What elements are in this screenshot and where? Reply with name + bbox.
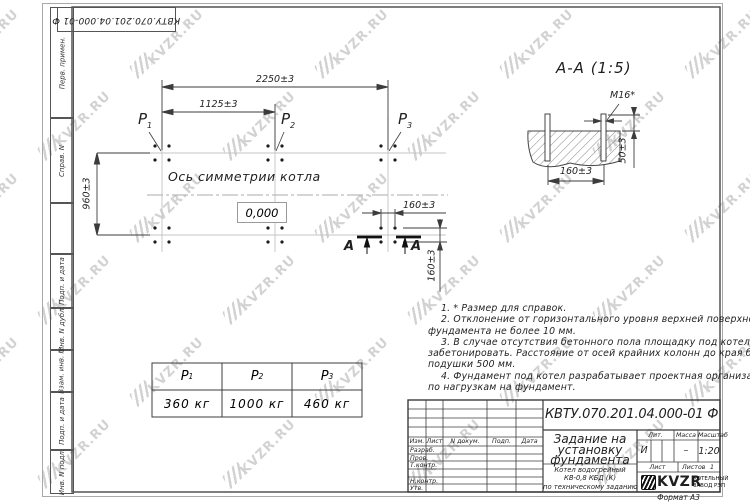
margin-cell-inv-dubl: Инв. N дубл.: [50, 307, 74, 351]
tb-col-podp: Подп.: [487, 438, 516, 445]
kvzr-logo-caption-line1: КОТЕЛЬНЫЙ: [693, 476, 728, 482]
tb-row-tkontr: Т.контр.: [410, 462, 437, 469]
tb-row-razrab: Разраб.: [410, 447, 435, 454]
note-line: по нагрузкам на фундамент.: [428, 382, 720, 393]
dim-160-vertical: 160±3: [427, 249, 438, 281]
dim-1125: 1125±3: [162, 99, 275, 110]
technical-notes: 1. * Размер для справок. 2. Отклонение о…: [428, 303, 720, 393]
tb-sheets-value: 1: [710, 464, 714, 471]
load-table-header-p2: P2: [222, 363, 292, 390]
tb-lit-value: И: [637, 445, 651, 456]
document-code: КВТУ.070.201.04.000-01 Ф: [545, 407, 718, 422]
note-line: забетонировать. Расстояние от осей крайн…: [428, 348, 720, 359]
doc-subtitle-line: Котел водогрейный: [543, 466, 637, 474]
note-line: 3. В случае отсутствия бетонного пола пл…: [428, 337, 720, 348]
margin-cell-perv-primen: Перв. примен.: [50, 7, 74, 119]
note-line: фундамента не более 10 мм.: [428, 326, 720, 337]
tb-row-nkontr: Н.контр.: [410, 478, 438, 485]
symmetry-axis-label: Ось симметрии котла: [168, 169, 321, 184]
dim-160-horizontal: 160±3: [403, 200, 435, 211]
section-letter-left: А: [344, 239, 354, 254]
margin-cell-podp-data-1: Подп. и дата: [50, 253, 74, 309]
dim-50: 50±3: [618, 137, 629, 163]
note-line: 2. Отклонение от горизонтального уровня …: [428, 314, 720, 325]
load-point-label-p2: P2: [281, 110, 295, 130]
load-point-label-p1: P1: [138, 110, 152, 130]
tb-sheet-label: Лист: [637, 464, 678, 471]
dim-160-section: 160±3: [548, 166, 604, 177]
margin-cell-sprav-n: Справ. N: [50, 117, 74, 204]
load-table-value-p1: 360 кг: [152, 390, 222, 417]
kvzr-logo-icon: [641, 475, 656, 490]
tb-sheets-label: Листов: [682, 464, 706, 471]
kvzr-logo-caption-line2: ЗАВОД РЭП: [693, 483, 725, 489]
tb-col-list: Лист: [426, 438, 443, 445]
load-point-label-p3: P3: [398, 110, 412, 130]
load-table-value-p2: 1000 кг: [222, 390, 292, 417]
doc-subtitle-line: КВ-0,8 КБД (К): [543, 474, 637, 482]
load-table-value-p3: 460 кг: [292, 390, 362, 417]
margin-cell-inv-podl: Инв. N подл.: [50, 449, 74, 494]
tb-col-izm: Изм.: [408, 438, 426, 445]
drawing-sheet: { "watermark": { "text": "KVZR.RU" }, "s…: [0, 0, 750, 500]
tb-col-ndokum: N докум.: [443, 438, 487, 445]
load-table-header-p1: P1: [152, 363, 222, 390]
format-label: Формат А3: [637, 493, 720, 502]
tb-row-utv: Утв.: [410, 485, 423, 492]
tb-mass-header: Масса: [674, 432, 698, 439]
load-table-header-p3: P3: [292, 363, 362, 390]
note-line: 4. Фундамент под котел разрабатывает про…: [428, 371, 720, 382]
note-line: подушки 500 мм.: [428, 359, 720, 370]
dim-2250: 2250±3: [162, 74, 388, 85]
note-line: 1. * Размер для справок.: [428, 303, 720, 314]
section-view-title: А-А (1:5): [556, 59, 632, 77]
dim-960: 960±3: [82, 177, 93, 209]
margin-cell-podp-data-2: Подп. и дата: [50, 391, 74, 451]
tb-col-data: Дата: [516, 438, 543, 445]
tb-scale-value: 1:20: [698, 446, 720, 457]
top-code-stamp: КВТУ.070.201.04.000-01 Ф: [57, 7, 176, 32]
tb-scale-header: Масштаб: [698, 432, 720, 439]
anchor-bolt-left: [545, 114, 550, 161]
margin-cell-vzam-inv: Взам. инв. N: [50, 349, 74, 393]
section-letter-right: А: [411, 239, 421, 254]
tb-lit-header: Лит.: [637, 432, 674, 439]
margin-cell-empty: [50, 202, 74, 255]
level-mark-box: 0,000: [237, 202, 287, 223]
doc-subtitle-line: по техническому заданию: [543, 483, 637, 491]
dim-m16: М16*: [610, 90, 635, 101]
tb-row-prov: Пров.: [410, 455, 428, 462]
tb-mass-value: –: [674, 445, 698, 456]
